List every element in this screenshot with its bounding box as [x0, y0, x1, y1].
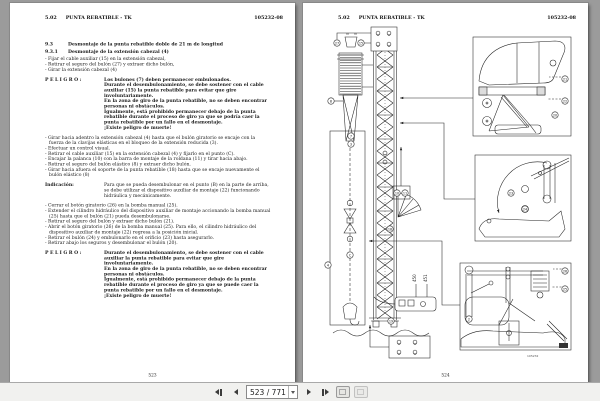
- bullet-item: - Retirar abajo los seguros y desembulon…: [45, 241, 271, 246]
- note-block: Indicación:Para que se pueda desembulona…: [45, 183, 271, 199]
- page-body-text: 9.3Desmontaje de la punta rebatible dobl…: [45, 42, 271, 303]
- last-page-button[interactable]: [319, 386, 332, 398]
- note-label: Indicación:: [45, 183, 104, 199]
- section-heading: 9.3.1Desmontaje de la extensión cabezal …: [45, 49, 271, 54]
- chapter-title: PUNTA REBATIBLE - TK: [66, 15, 132, 21]
- danger-block: PELIGRO:Los bulones (7) deben permanecer…: [45, 77, 271, 131]
- next-page-button[interactable]: [302, 386, 315, 398]
- section-heading: 9.3Desmontaje de la punta rebatible dobl…: [45, 42, 271, 47]
- page-number-footer: 524: [303, 373, 588, 378]
- section-number: 5.02: [338, 15, 350, 21]
- document-number: 105232-08: [547, 15, 576, 21]
- page-number-field[interactable]: 523 / 771: [246, 385, 298, 399]
- pdf-viewer-window: { "viewer": { "background_color": "#9b9b…: [0, 0, 600, 401]
- bullet-list: - Fijar el cable auxiliar (15) en la ext…: [45, 57, 271, 73]
- text-line: En la zona de giro de la punta rebatible…: [104, 267, 271, 278]
- bullet-item: - Extender el cilindro hidráulico del di…: [45, 208, 271, 219]
- heading-number: 9.3: [45, 42, 68, 47]
- page-navigation: 523 / 771: [212, 385, 368, 399]
- viewer-toolbar: 523 / 771: [0, 382, 600, 401]
- text-line: ¡Existe peligro de muerte!: [104, 125, 271, 130]
- bullet-list: - Girar hacia adentro la extensión cabez…: [45, 135, 271, 178]
- danger-text: Los bulones (7) deben permanecer embulon…: [104, 77, 271, 131]
- bullet-item: - Girar la extensión cabezal (4): [45, 67, 271, 72]
- document-page-left: 5.02PUNTA REBATIBLE - TK 105232-08 9.3De…: [10, 3, 295, 384]
- bullet-item: - Girar hacia adentro la extensión cabez…: [45, 135, 271, 146]
- document-number: 105232-08: [254, 15, 283, 21]
- bullet-item: - Girar hacia afuera el soporte de la pu…: [45, 167, 271, 178]
- danger-block: PELIGRO:Durante el desembulonamiento, se…: [45, 250, 271, 298]
- next-page-icon: [307, 389, 311, 395]
- danger-label: PELIGRO:: [45, 77, 104, 131]
- document-page-right: 450 451: [303, 3, 588, 384]
- danger-label: PELIGRO:: [45, 250, 104, 298]
- text-line: Igualmente, está prohibido permanecer de…: [104, 109, 271, 125]
- text-line: Durante el desembulonamiento, se debe so…: [104, 83, 271, 99]
- page-header: 5.02PUNTA REBATIBLE - TK 105232-08: [45, 15, 283, 22]
- page-header: 5.02PUNTA REBATIBLE - TK 105232-08: [338, 15, 576, 22]
- text-line: Para que se pueda desembulonar en el pun…: [104, 183, 271, 199]
- first-page-icon: [215, 389, 219, 395]
- heading-text: Desmontaje de la extensión cabezal (4): [68, 49, 169, 55]
- note-text: Para que se pueda desembulonar en el pun…: [104, 183, 271, 199]
- last-page-icon: [325, 389, 329, 395]
- heading-number: 9.3.1: [45, 49, 68, 54]
- text-line: Durante el desembulonamiento, se debe so…: [104, 250, 271, 266]
- heading-text: Desmontaje de la punta rebatible doble d…: [68, 42, 223, 48]
- previous-view-button[interactable]: [336, 386, 350, 398]
- previous-page-icon: [234, 389, 238, 395]
- chapter-title: PUNTA REBATIBLE - TK: [359, 15, 425, 21]
- bullet-list: - Cerrar el botón giratorio (26) en la b…: [45, 203, 271, 246]
- text-line: ¡Existe peligro de muerte!: [104, 293, 271, 298]
- chevron-down-icon[interactable]: [288, 386, 297, 398]
- text-line: En la zona de giro de la punta rebatible…: [104, 99, 271, 110]
- previous-page-button[interactable]: [229, 386, 242, 398]
- next-view-button[interactable]: [354, 386, 368, 398]
- page-number-value: 523 / 771: [247, 388, 288, 397]
- page-number-footer: 523: [10, 373, 295, 378]
- section-number: 5.02: [45, 15, 57, 21]
- text-line: Igualmente, está prohibido permanecer de…: [104, 277, 271, 293]
- danger-text: Durante el desembulonamiento, se debe so…: [104, 250, 271, 298]
- first-page-button[interactable]: [212, 386, 225, 398]
- bullet-item: - Abrir el botón giratorio (26) de la bo…: [45, 225, 271, 236]
